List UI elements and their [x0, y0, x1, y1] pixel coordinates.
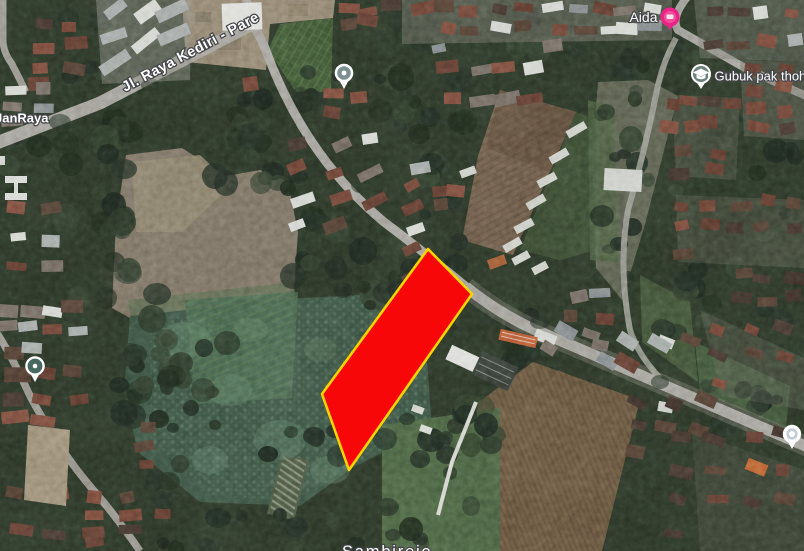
svg-text:Aida: Aida — [629, 9, 657, 25]
svg-text:Gubuk pak thoha: Gubuk pak thoha — [715, 69, 804, 84]
svg-text:Sambirejo: Sambirejo — [342, 543, 432, 551]
svg-text:JanRaya: JanRaya — [0, 111, 49, 126]
